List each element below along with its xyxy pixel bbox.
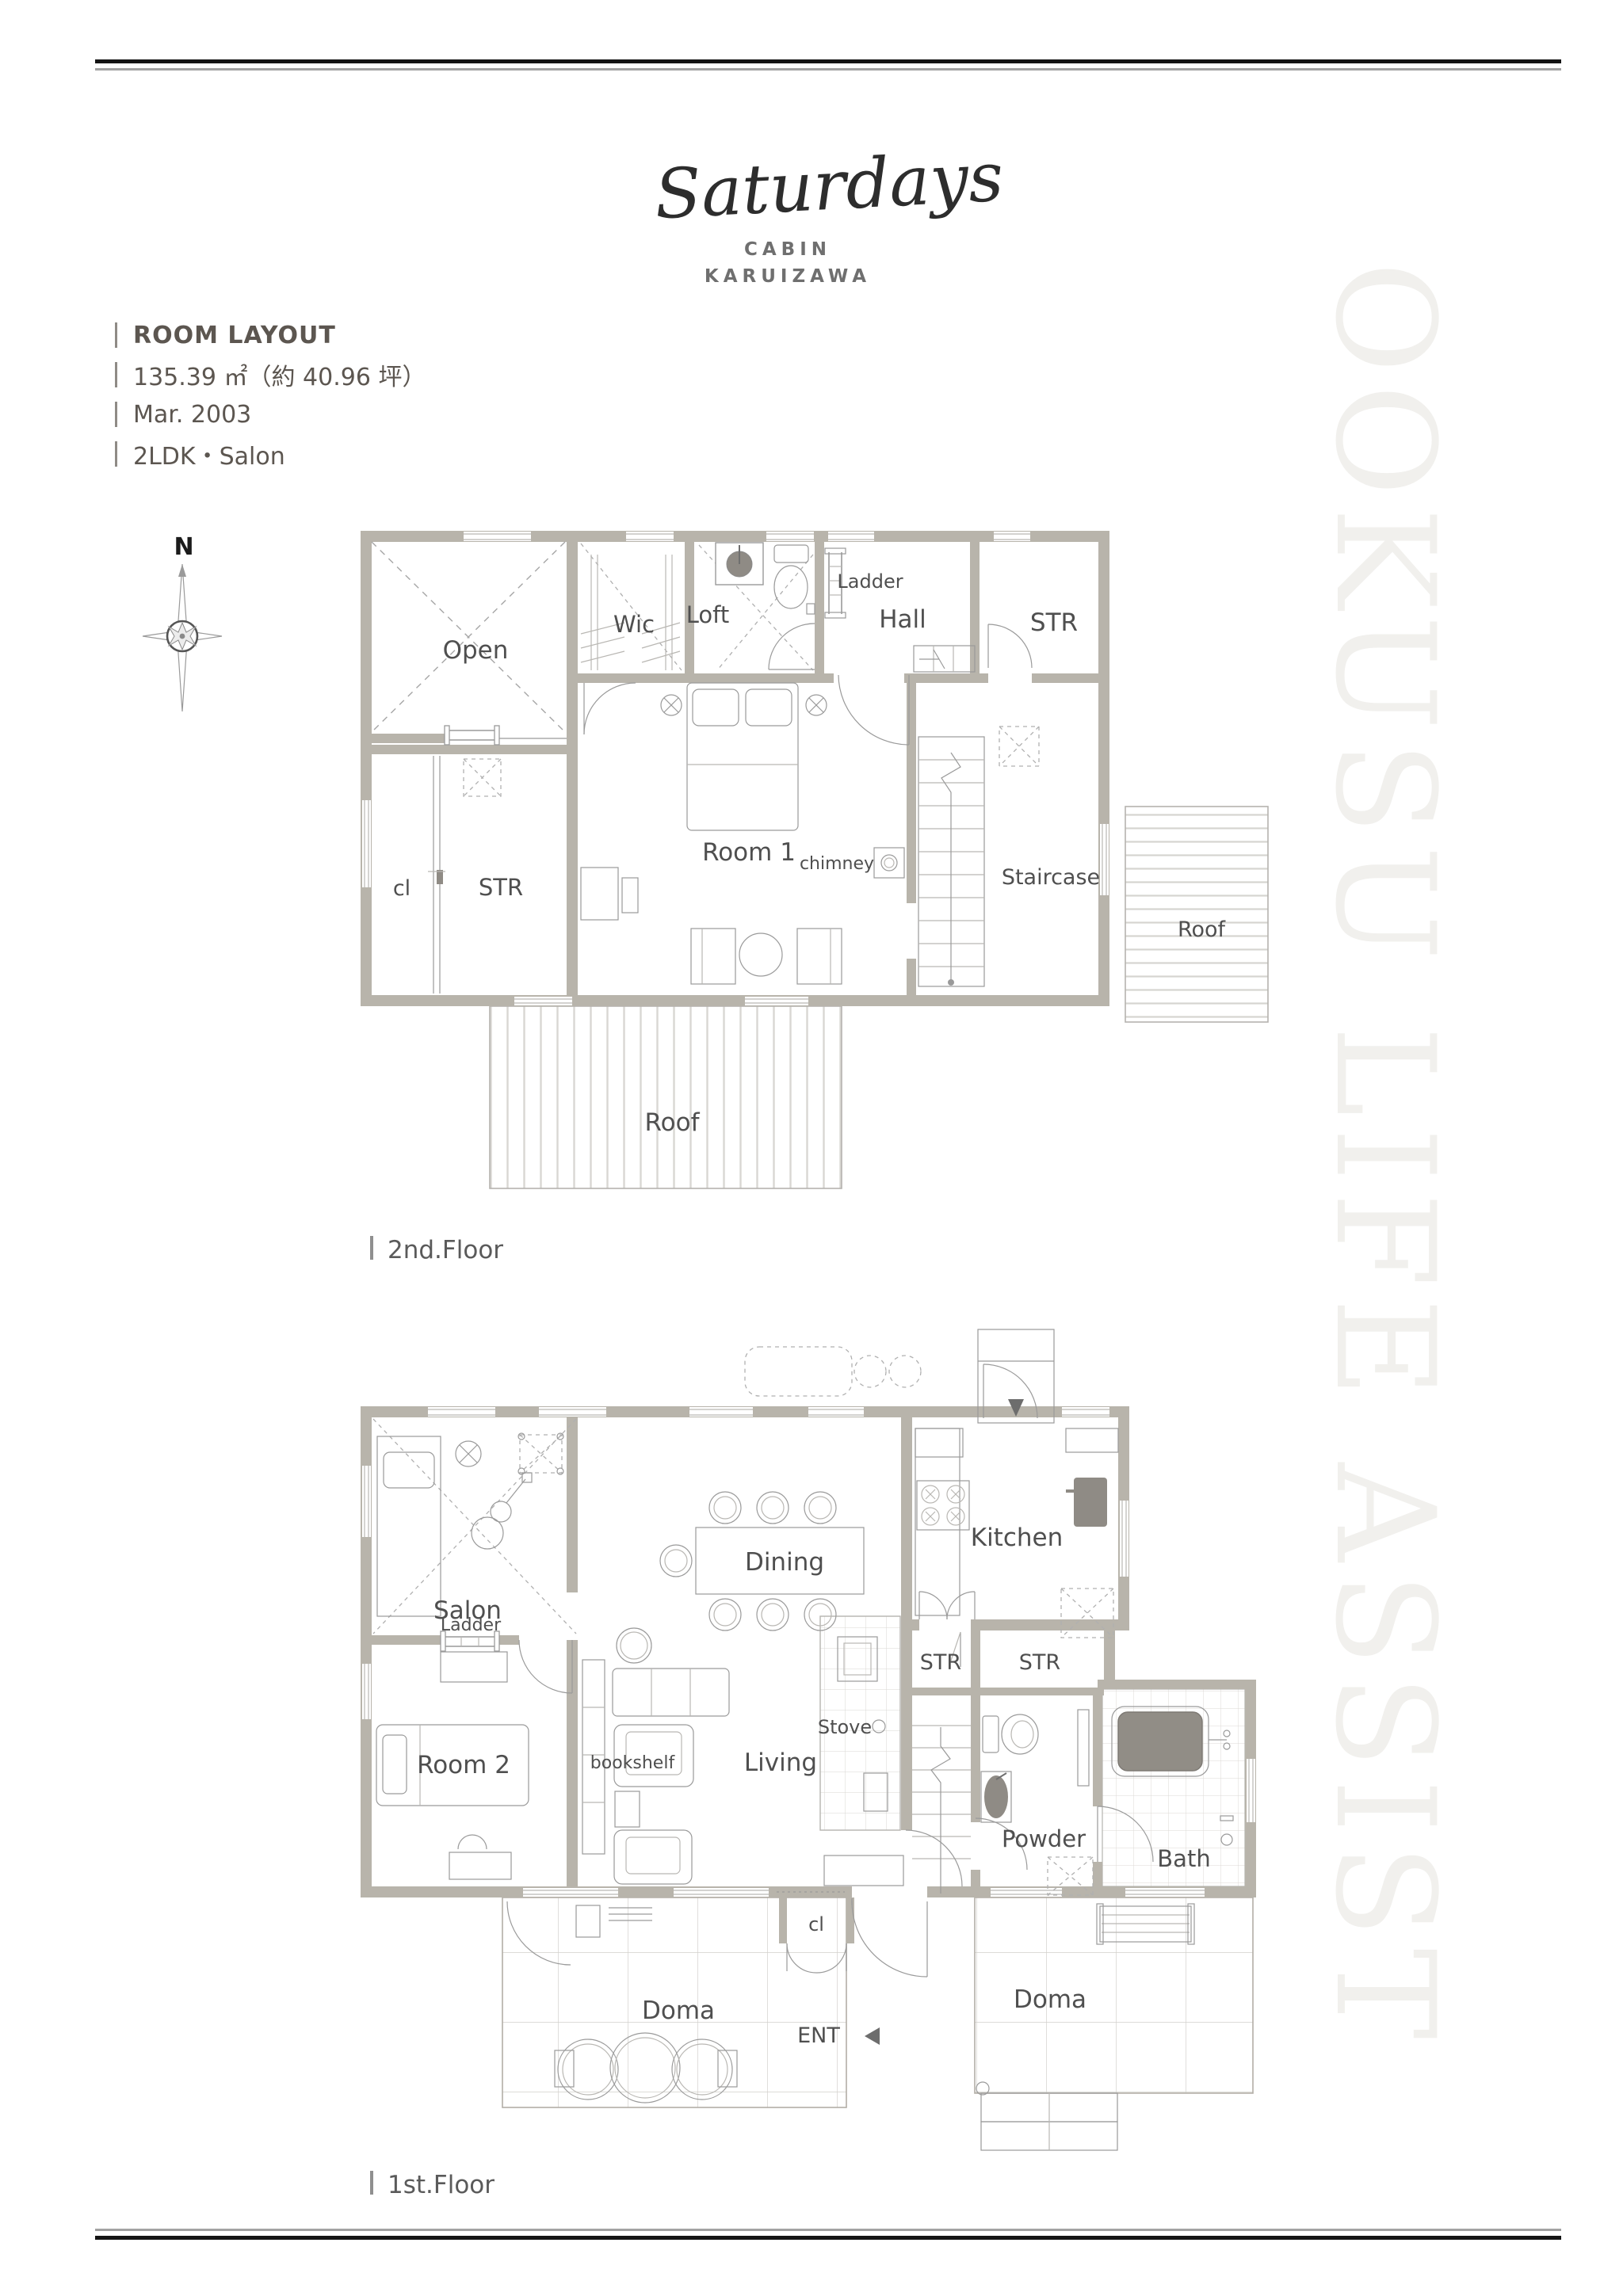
info-bar <box>115 441 117 467</box>
room-label-hall: Hall <box>879 605 926 634</box>
room-label-staircase: Staircase <box>1002 865 1100 890</box>
room-label-roof-bottom: Roof <box>645 1108 701 1137</box>
room-label-cl-1f: cl <box>808 1913 824 1936</box>
compass-north-label: N <box>174 533 193 561</box>
room-label-loft: Loft <box>686 601 729 628</box>
brand-sub-karuizawa: KARUIZAWA <box>629 266 946 287</box>
room-label-room1: Room 1 <box>702 838 796 867</box>
room-label-doma-right: Doma <box>1014 1985 1086 2014</box>
room-label-wic: Wic <box>613 611 655 638</box>
floor-plan-1f: Salon Ladder Dining Kitchen Room 2 books… <box>361 1329 1256 2199</box>
pendant-light-icon <box>889 1356 921 1387</box>
room-label-room2: Room 2 <box>417 1751 510 1779</box>
info-title: ROOM LAYOUT <box>133 322 336 349</box>
caption-bar <box>370 1236 373 1260</box>
info-bar <box>115 402 117 427</box>
room-label-bath: Bath <box>1157 1845 1210 1872</box>
compass-icon: N <box>143 533 222 711</box>
info-built: Mar. 2003 <box>133 401 251 429</box>
room-label-dining: Dining <box>745 1548 824 1577</box>
room-label-ent: ENT <box>797 2023 840 2048</box>
caption-1st-floor: 1st.Floor <box>388 2171 495 2199</box>
info-bar <box>115 322 117 348</box>
room-label-roof-right: Roof <box>1178 917 1227 942</box>
room-label-str-top: STR <box>1030 608 1078 637</box>
info-layout: 2LDK・Salon <box>133 437 285 471</box>
room-label-powder: Powder <box>1002 1825 1086 1852</box>
room-label-str-a: STR <box>920 1650 961 1675</box>
room-label-stove: Stove <box>818 1716 872 1738</box>
room-label-cl-2f: cl <box>393 876 411 901</box>
room-label-ladder-2f: Ladder <box>837 570 903 593</box>
info-bar <box>115 362 117 387</box>
info-row-area: 135.39 ㎡（約 40.96 坪） <box>115 355 426 395</box>
roof-deck-right <box>1125 807 1268 1022</box>
room-label-chimney: chimney <box>800 854 874 874</box>
roof-deck-bottom <box>490 1006 842 1188</box>
room-label-open: Open <box>443 636 509 665</box>
info-area: 135.39 ㎡（約 40.96 坪） <box>133 357 426 392</box>
brand-sub-cabin: CABIN <box>629 239 946 260</box>
room-label-kitchen: Kitchen <box>971 1524 1064 1552</box>
pendant-light-icon <box>854 1356 886 1387</box>
info-block: ROOM LAYOUT 135.39 ㎡（約 40.96 坪） Mar. 200… <box>115 315 426 474</box>
room-label-bookshelf: bookshelf <box>590 1753 676 1773</box>
info-row-title: ROOM LAYOUT <box>115 315 426 355</box>
info-row-built: Mar. 2003 <box>115 395 426 434</box>
caption-bar <box>370 2171 373 2195</box>
room-label-str-left: STR <box>479 874 523 901</box>
room-label-living: Living <box>744 1749 817 1777</box>
caption-2nd-floor: 2nd.Floor <box>388 1236 503 1264</box>
room-label-doma-left: Doma <box>642 1997 715 2025</box>
room-label-str-b: STR <box>1019 1650 1060 1675</box>
room-label-ladder-1f: Ladder <box>441 1615 502 1635</box>
canopy-dashed <box>745 1347 852 1396</box>
info-row-layout: 2LDK・Salon <box>115 434 426 474</box>
brand-logo: Saturdays <box>653 139 974 235</box>
floor-plan-2f: Open Wic Loft Ladder Hall STR cl STR Roo… <box>361 531 1268 1264</box>
floor-plan-sheet: OOKUSU LIFE ASSIST Saturdays CABIN KARUI… <box>0 0 1623 2296</box>
